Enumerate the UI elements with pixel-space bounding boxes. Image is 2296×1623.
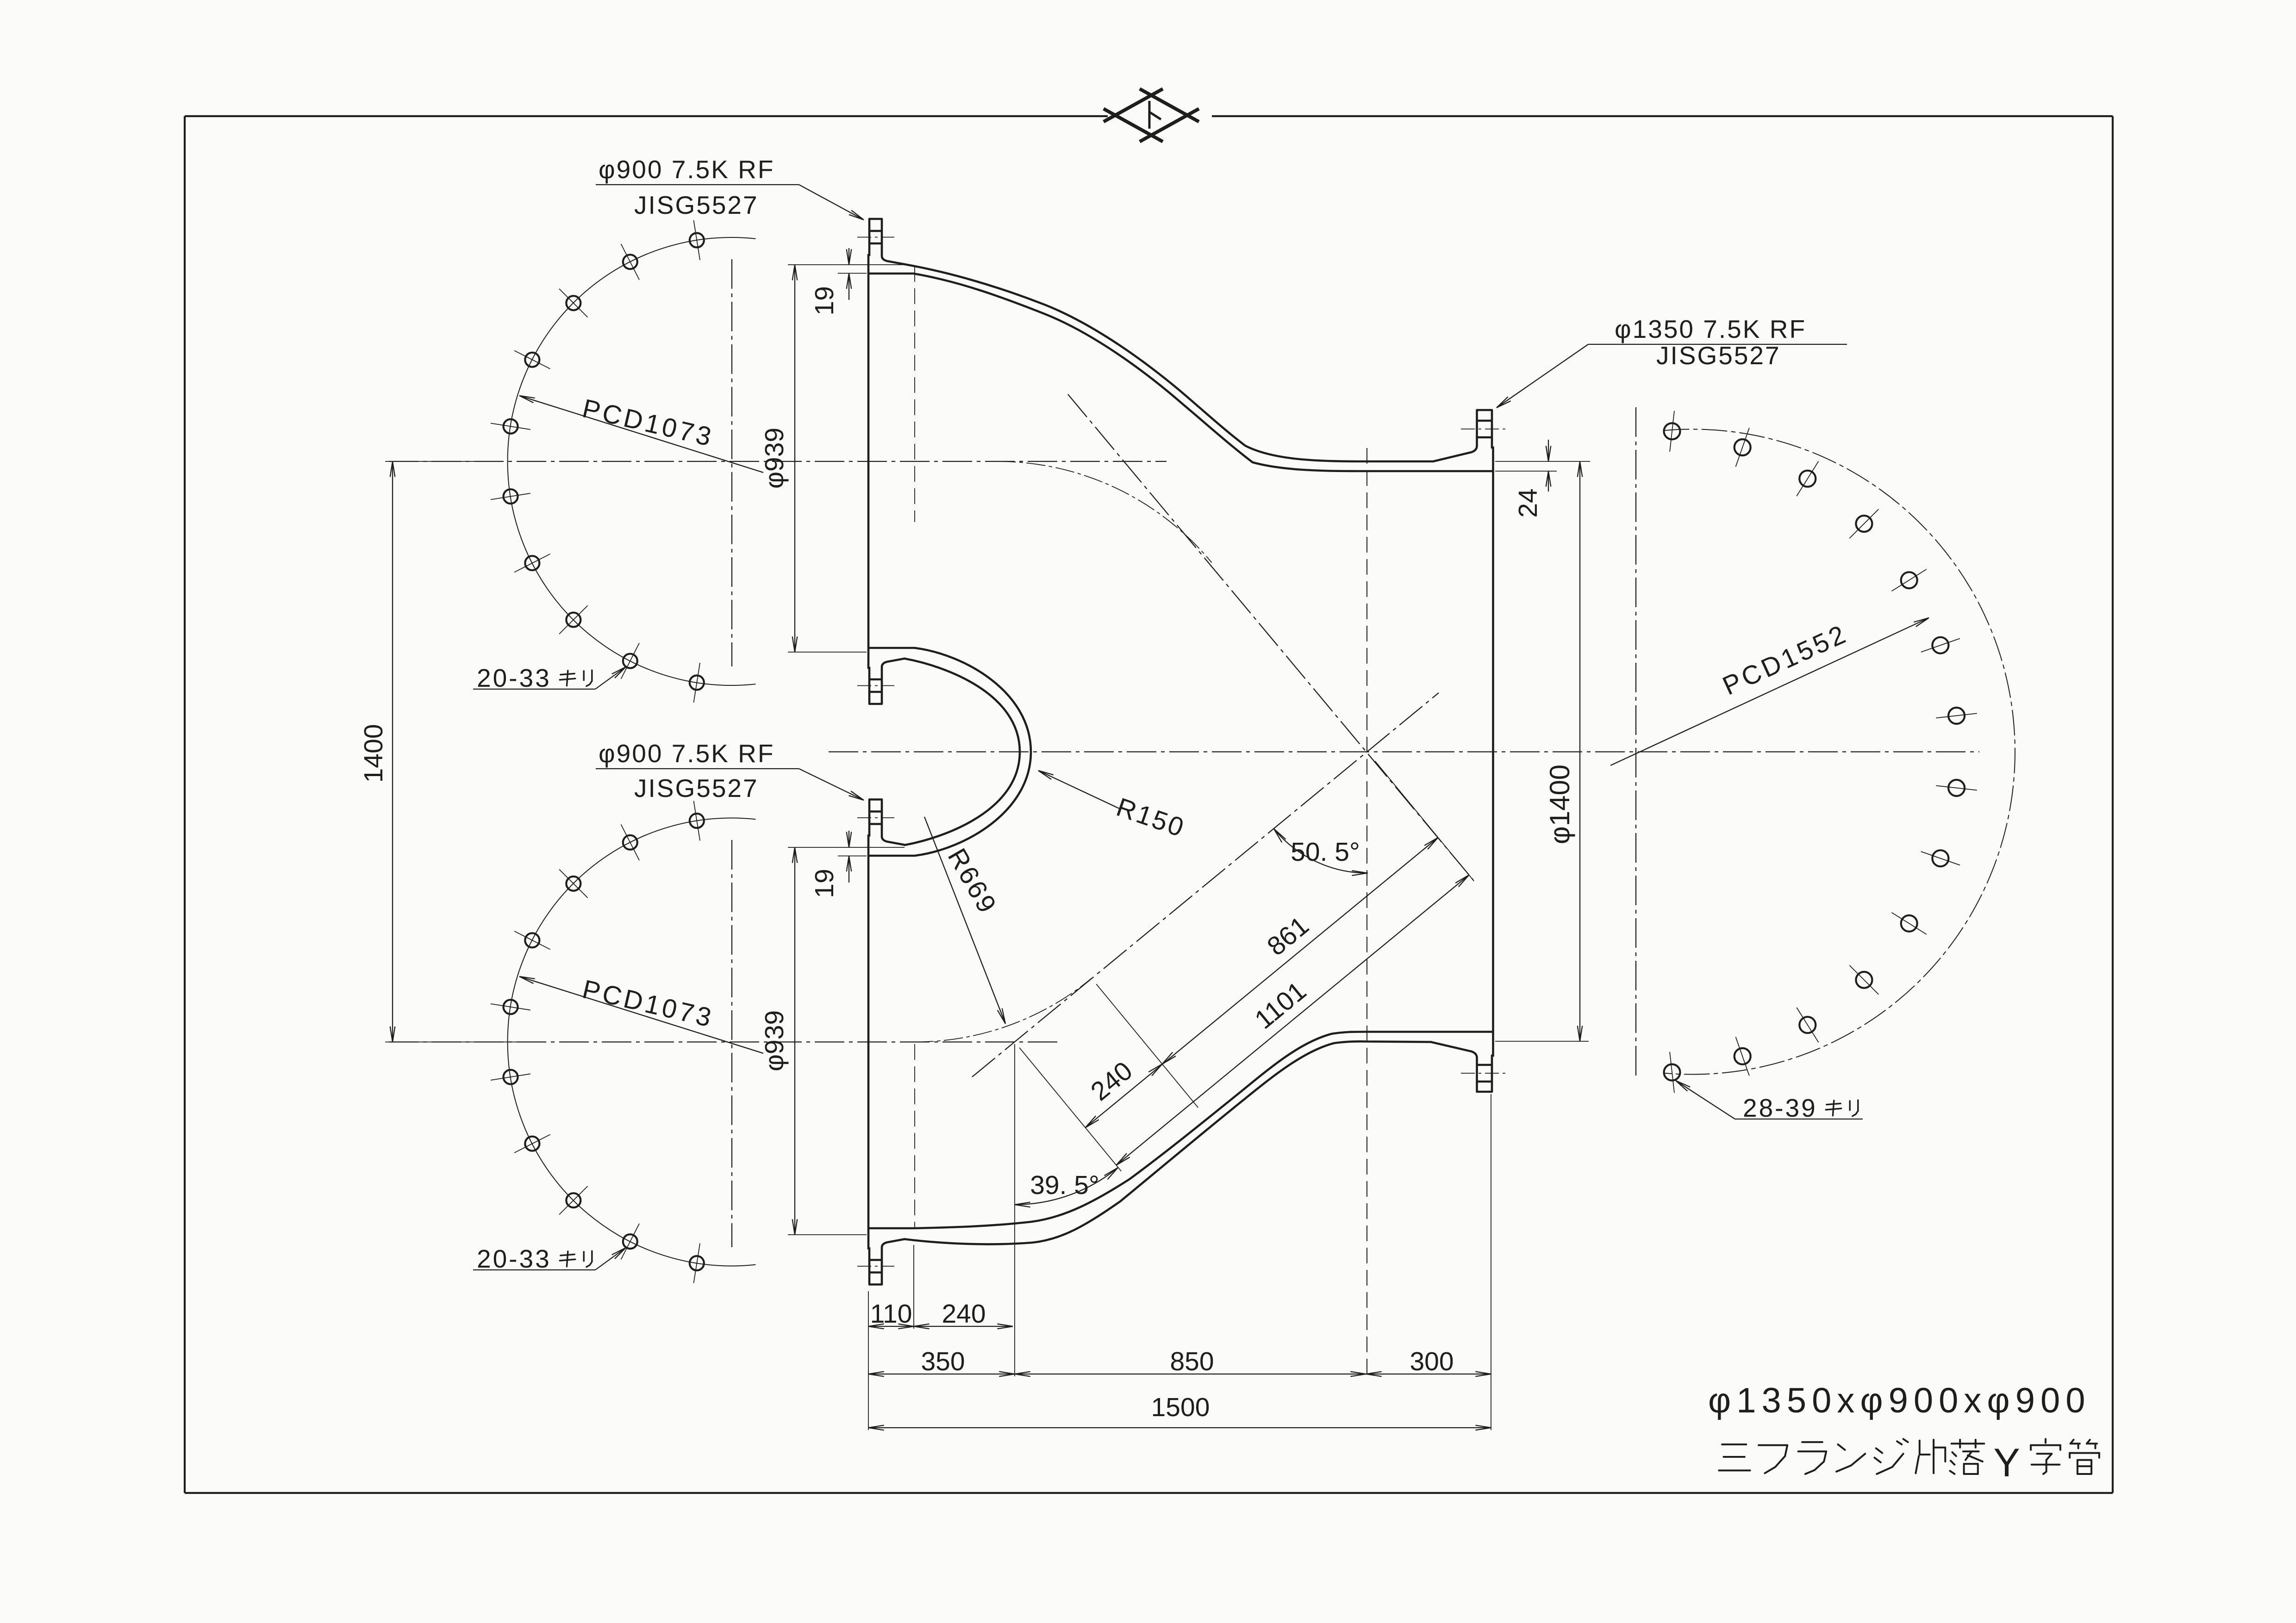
svg-text:20-33: 20-33: [477, 1244, 551, 1273]
svg-text:24: 24: [1513, 488, 1543, 517]
svg-text:350: 350: [921, 1347, 965, 1376]
svg-text:Y: Y: [1993, 1441, 2020, 1485]
svg-text:JISG5527: JISG5527: [634, 191, 759, 219]
svg-text:φ939: φ939: [760, 428, 789, 489]
svg-text:1500: 1500: [1151, 1393, 1210, 1422]
svg-text:1400: 1400: [359, 724, 388, 783]
svg-text:28-39: 28-39: [1743, 1094, 1817, 1122]
svg-text:110: 110: [870, 1299, 912, 1329]
svg-text:20-33: 20-33: [477, 664, 551, 692]
svg-text:φ1350xφ900xφ900: φ1350xφ900xφ900: [1708, 1381, 2091, 1420]
svg-text:JISG5527: JISG5527: [1656, 341, 1781, 370]
svg-text:φ900 7.5K RF: φ900 7.5K RF: [599, 155, 774, 184]
svg-text:39. 5°: 39. 5°: [1030, 1170, 1099, 1200]
svg-text:19: 19: [810, 286, 839, 315]
svg-text:50. 5°: 50. 5°: [1291, 837, 1360, 867]
svg-text:φ1400: φ1400: [1544, 765, 1575, 844]
svg-text:φ1350 7.5K RF: φ1350 7.5K RF: [1615, 315, 1806, 343]
svg-text:19: 19: [810, 869, 839, 898]
svg-text:JISG5527: JISG5527: [634, 774, 759, 802]
svg-text:φ939: φ939: [760, 1010, 789, 1071]
svg-text:850: 850: [1170, 1347, 1214, 1376]
svg-text:300: 300: [1410, 1347, 1454, 1376]
svg-text:240: 240: [942, 1299, 986, 1329]
svg-text:φ900 7.5K RF: φ900 7.5K RF: [599, 739, 774, 768]
